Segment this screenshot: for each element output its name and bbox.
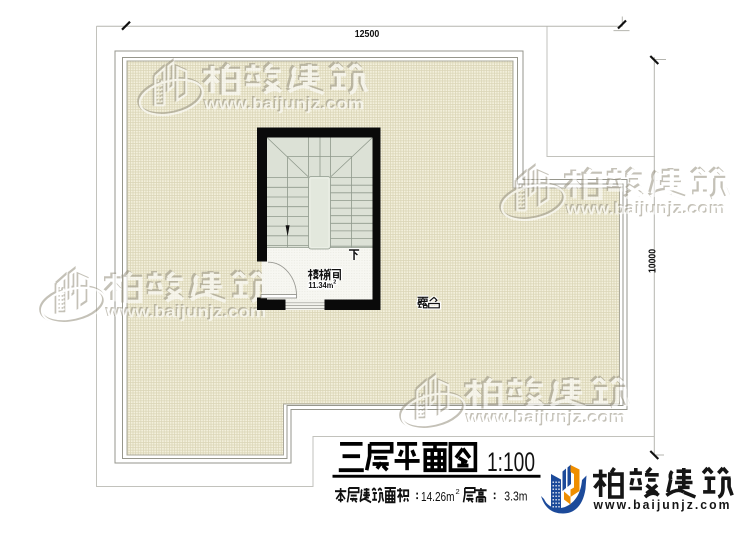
- svg-text:10000: 10000: [648, 249, 659, 273]
- svg-text:www.baijunjz.com: www.baijunjz.com: [593, 498, 732, 512]
- svg-text:11.34m: 11.34m: [308, 280, 333, 290]
- svg-text:www.baijunjz.com: www.baijunjz.com: [203, 94, 364, 113]
- svg-text:www.baijunjz.com: www.baijunjz.com: [105, 302, 266, 321]
- svg-text:1:100: 1:100: [487, 447, 535, 477]
- svg-text:www.baijunjz.com: www.baijunjz.com: [465, 408, 626, 427]
- svg-text:2: 2: [333, 280, 336, 286]
- svg-text:www.baijunjz.com: www.baijunjz.com: [565, 199, 726, 218]
- svg-text:12500: 12500: [355, 29, 380, 40]
- svg-text:14.26m: 14.26m: [421, 489, 455, 504]
- svg-text:3.3m: 3.3m: [504, 489, 527, 504]
- svg-text:2: 2: [456, 487, 460, 496]
